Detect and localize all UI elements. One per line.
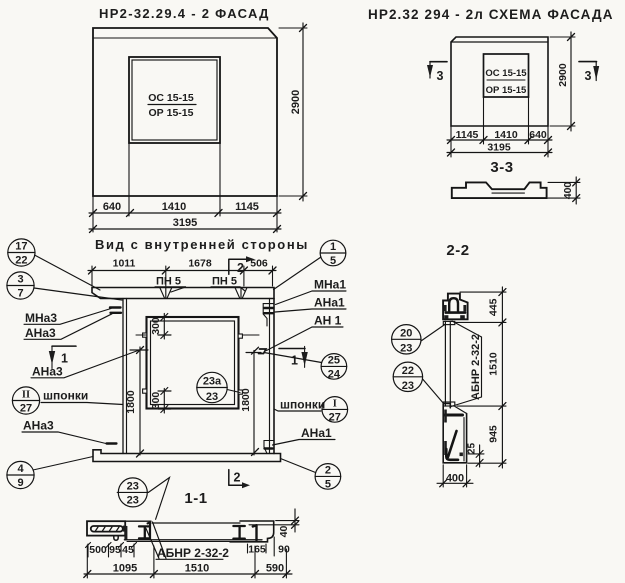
svg-text:400: 400 [562, 182, 574, 200]
svg-text:1800: 1800 [125, 390, 137, 414]
svg-text:1-1: 1-1 [184, 490, 207, 507]
svg-text:300: 300 [150, 317, 162, 335]
svg-text:2: 2 [234, 471, 241, 485]
svg-text:1410: 1410 [162, 201, 186, 213]
svg-text:20: 20 [400, 327, 412, 339]
svg-text:3-3: 3-3 [490, 159, 513, 176]
svg-text:АНа3: АНа3 [32, 365, 63, 379]
svg-text:1: 1 [330, 241, 336, 253]
svg-text:1011: 1011 [113, 258, 136, 270]
svg-text:27: 27 [20, 403, 32, 415]
svg-text:3: 3 [585, 69, 592, 83]
svg-text:23: 23 [400, 342, 412, 354]
svg-text:945: 945 [488, 425, 500, 443]
svg-text:2900: 2900 [557, 63, 569, 87]
svg-text:2900: 2900 [290, 90, 302, 114]
svg-text:АНа1: АНа1 [301, 426, 332, 440]
svg-text:23: 23 [127, 480, 139, 492]
svg-text:Вид с внутренней стороны: Вид с внутренней стороны [95, 237, 309, 252]
svg-text:400: 400 [446, 473, 464, 485]
svg-text:1410: 1410 [494, 129, 518, 141]
svg-text:ОР 15-15: ОР 15-15 [486, 85, 527, 96]
svg-text:95: 95 [109, 544, 121, 556]
svg-text:1145: 1145 [456, 129, 479, 141]
svg-text:1510: 1510 [488, 352, 500, 376]
svg-text:1095: 1095 [113, 563, 137, 575]
svg-text:22: 22 [15, 255, 27, 267]
svg-text:5: 5 [330, 255, 336, 267]
svg-text:23а: 23а [203, 376, 222, 388]
svg-text:23: 23 [402, 380, 414, 392]
svg-text:ОС 15-15: ОС 15-15 [148, 92, 194, 104]
svg-text:4: 4 [17, 463, 24, 475]
svg-text:640: 640 [103, 201, 121, 213]
svg-text:ОС 15-15: ОС 15-15 [485, 68, 527, 79]
svg-text:3195: 3195 [173, 217, 197, 229]
svg-text:АБНР 2-32-2: АБНР 2-32-2 [470, 334, 482, 400]
svg-text:2-2: 2-2 [446, 242, 469, 259]
svg-text:165: 165 [248, 544, 266, 556]
svg-text:II: II [22, 390, 30, 401]
svg-text:1800: 1800 [240, 388, 252, 412]
svg-text:НР2-32.29.4 - 2 ФАСАД: НР2-32.29.4 - 2 ФАСАД [99, 6, 270, 21]
svg-text:ПН 5: ПН 5 [212, 276, 237, 288]
svg-text:АНа3: АНа3 [25, 326, 56, 340]
svg-text:ПН 5: ПН 5 [156, 276, 181, 288]
svg-text:27: 27 [329, 411, 341, 423]
svg-text:АНа3: АНа3 [23, 419, 54, 433]
svg-text:МНа3: МНа3 [25, 311, 57, 325]
svg-text:300: 300 [150, 392, 162, 410]
svg-text:АБНР 2-32-2: АБНР 2-32-2 [157, 546, 229, 560]
svg-text:1: 1 [61, 352, 68, 366]
svg-text:23: 23 [127, 494, 139, 506]
svg-text:24: 24 [328, 368, 341, 380]
svg-text:3: 3 [17, 274, 23, 286]
svg-text:90: 90 [278, 544, 290, 556]
svg-text:40: 40 [278, 526, 290, 538]
svg-text:шпонки: шпонки [280, 398, 325, 412]
svg-text:500: 500 [89, 544, 107, 556]
svg-text:1: 1 [291, 354, 298, 368]
svg-text:45: 45 [122, 544, 134, 556]
svg-text:9: 9 [17, 477, 23, 489]
svg-text:ОР 15-15: ОР 15-15 [149, 107, 194, 119]
svg-text:2: 2 [325, 464, 331, 476]
svg-text:I: I [333, 398, 337, 409]
svg-text:НР2.32 294 - 2л СХЕМА ФАСАДА: НР2.32 294 - 2л СХЕМА ФАСАДА [368, 7, 614, 22]
svg-text:АН 1: АН 1 [314, 314, 342, 328]
svg-text:590: 590 [266, 563, 284, 575]
svg-text:2: 2 [237, 261, 244, 275]
svg-text:22: 22 [402, 365, 414, 377]
svg-text:1510: 1510 [185, 563, 209, 575]
svg-text:3: 3 [437, 69, 444, 83]
svg-text:17: 17 [15, 241, 27, 253]
svg-text:1145: 1145 [235, 201, 259, 213]
svg-text:7: 7 [17, 288, 23, 300]
svg-text:1678: 1678 [188, 258, 212, 270]
svg-text:25: 25 [467, 443, 478, 455]
svg-text:АНа1: АНа1 [314, 296, 345, 310]
svg-text:23: 23 [206, 391, 218, 403]
svg-text:445: 445 [488, 298, 500, 316]
svg-text:25: 25 [328, 354, 340, 366]
svg-text:5: 5 [325, 478, 331, 490]
svg-text:640: 640 [529, 129, 547, 141]
svg-text:МНа1: МНа1 [314, 278, 346, 292]
svg-text:3195: 3195 [487, 142, 511, 154]
svg-text:шпонки: шпонки [43, 389, 88, 403]
